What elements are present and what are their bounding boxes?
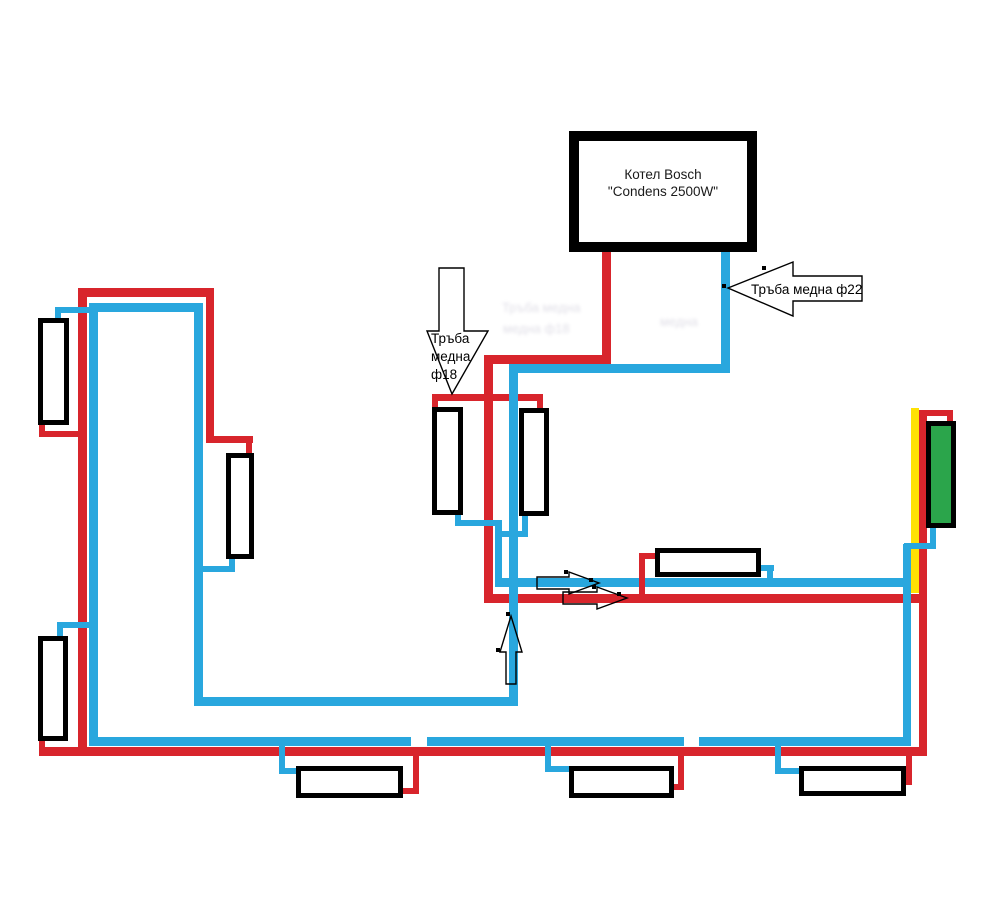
radiator-left-upper xyxy=(38,318,69,425)
return-pipe-segment xyxy=(903,544,911,746)
radiator-left-lower xyxy=(38,636,68,741)
radiator-bottom-right xyxy=(799,766,906,796)
return-pipe-segment xyxy=(509,364,730,373)
return-pipe-segment xyxy=(89,303,98,746)
pipe18-label-line1: Тръба xyxy=(431,330,470,348)
return-pipe-segment xyxy=(455,520,502,526)
arrow-vertex-dot xyxy=(496,648,500,652)
erased-text-artifact: медна xyxy=(660,314,698,329)
supply-pipe-segment xyxy=(78,288,214,297)
heating-system-diagram: Котел Bosch "Condens 2500W" Тръба медна … xyxy=(0,0,998,920)
radiator-right-horizontal xyxy=(655,548,761,577)
pipe18-label-line3: ф18 xyxy=(431,366,470,384)
arrow-vertex-dot xyxy=(762,266,766,270)
return-pipe-segment xyxy=(194,697,518,706)
pipe18-label-line2: медна xyxy=(431,348,470,366)
return-pipe-segment xyxy=(55,307,98,313)
supply-pipe-segment xyxy=(39,747,927,756)
pipe-gap xyxy=(684,737,699,746)
supply-pipe-segment xyxy=(639,553,645,599)
return-pipe-segment xyxy=(89,737,911,746)
return-pipe-segment xyxy=(495,578,911,587)
pipe18-label: Тръба медна ф18 xyxy=(431,330,470,384)
radiator-green xyxy=(926,421,956,528)
return-pipe-segment xyxy=(767,565,773,585)
supply-pipe-segment xyxy=(639,553,656,559)
arrow-vertex-dot xyxy=(564,570,568,574)
return-pipe-segment xyxy=(545,766,571,772)
return-pipe-segment xyxy=(775,768,801,774)
boiler-box: Котел Bosch "Condens 2500W" xyxy=(569,131,757,252)
radiator-middle-right xyxy=(519,408,549,516)
boiler-label-line2: "Condens 2500W" xyxy=(579,183,747,200)
marker-pipe-segment xyxy=(911,408,919,593)
return-pipe-segment xyxy=(904,543,936,549)
radiator-inner-wall xyxy=(226,453,254,559)
supply-pipe-segment xyxy=(484,355,493,603)
pipe22-label: Тръба медна ф22 xyxy=(751,281,862,299)
supply-pipe-segment xyxy=(432,394,543,401)
erased-text-artifact: Тръба медна xyxy=(502,300,580,315)
supply-pipe-segment xyxy=(484,594,927,603)
supply-pipe-segment xyxy=(602,248,611,364)
erased-text-artifact: медна ф18 xyxy=(503,321,570,336)
radiator-middle-left xyxy=(432,407,463,515)
return-pipe-segment xyxy=(57,622,98,628)
supply-pipe-segment xyxy=(39,431,84,437)
supply-pipe-segment xyxy=(484,355,611,364)
return-pipe-segment xyxy=(194,303,203,706)
radiator-bottom-left xyxy=(296,766,403,798)
pipe-gap xyxy=(411,737,427,746)
return-pipe-segment xyxy=(721,248,730,373)
return-pipe-segment xyxy=(198,566,235,572)
boiler-label-line1: Котел Bosch xyxy=(579,166,747,183)
radiator-bottom-middle xyxy=(569,766,674,798)
supply-pipe-segment xyxy=(206,288,214,443)
return-pipe-segment xyxy=(497,531,528,537)
return-pipe-segment xyxy=(89,303,203,312)
supply-pipe-segment xyxy=(78,288,87,756)
